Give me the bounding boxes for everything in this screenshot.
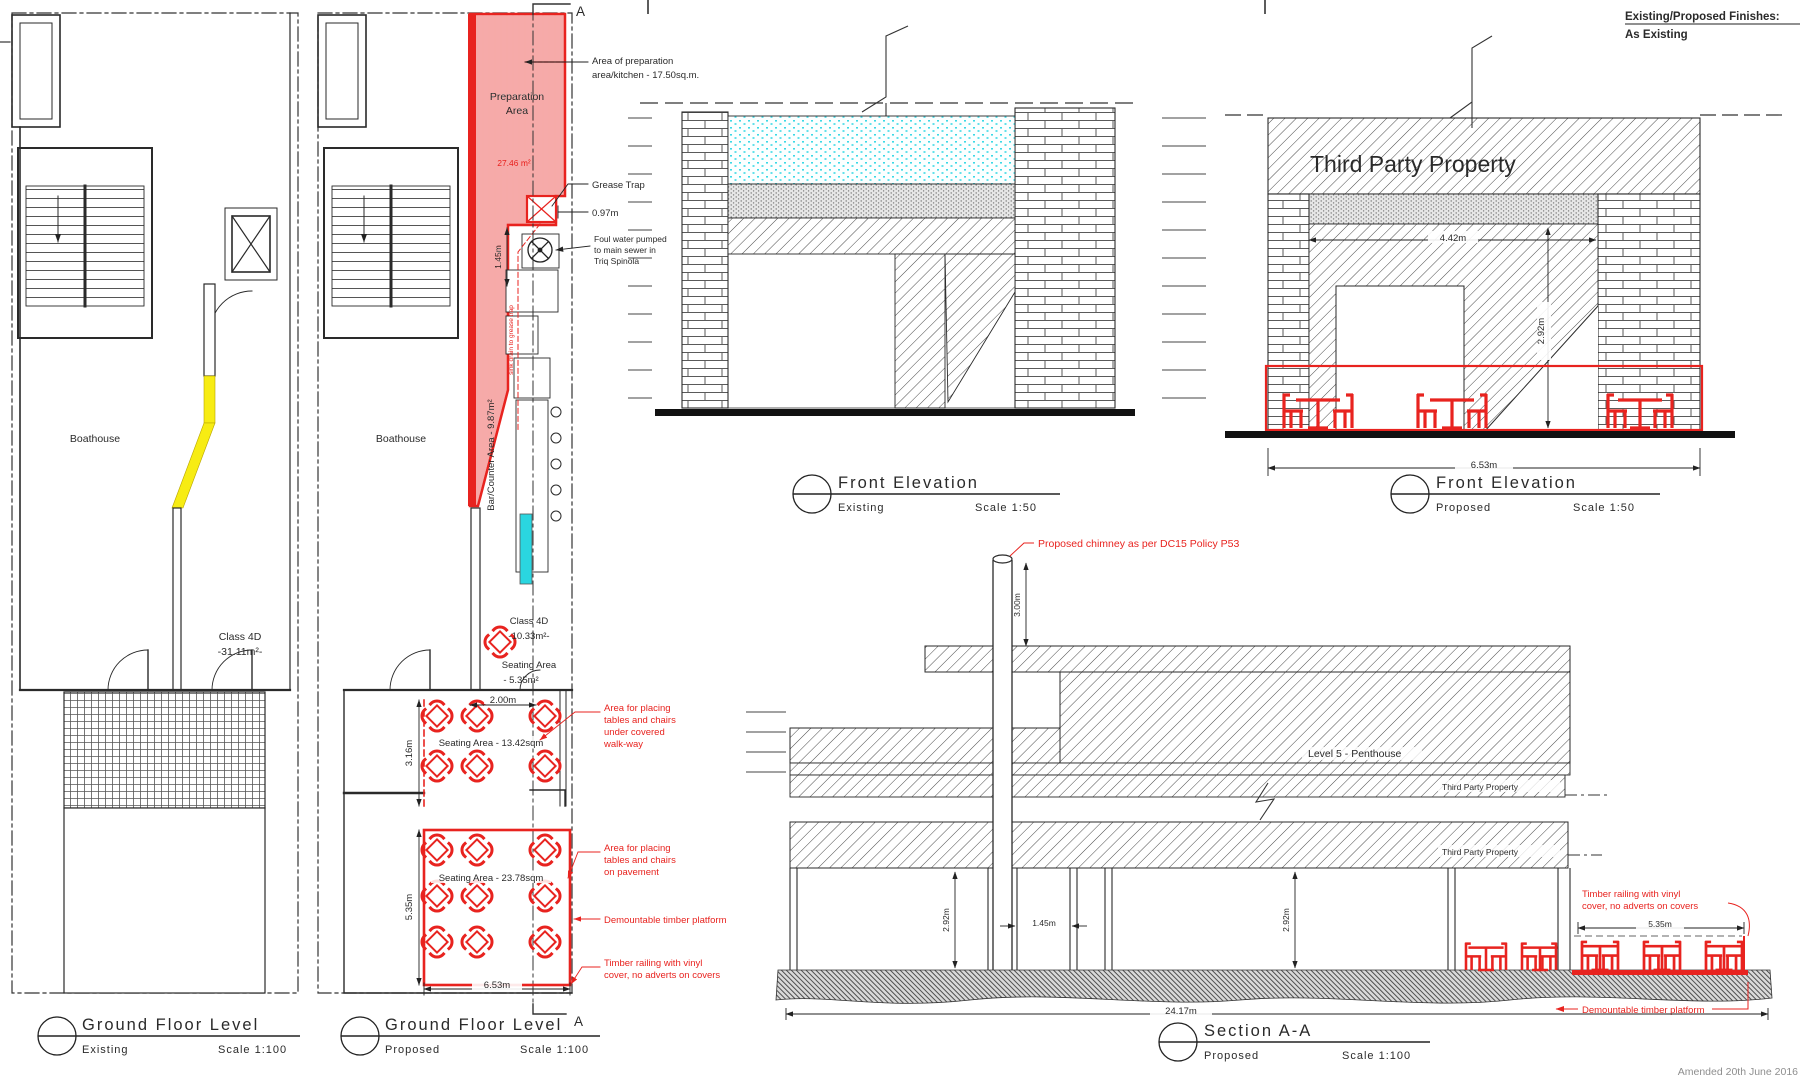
- level5-label: Level 5 - Penthouse: [1308, 748, 1402, 760]
- svg-text:under covered: under covered: [604, 727, 665, 738]
- lift-shaft: [225, 208, 277, 280]
- title-scale: Scale 1:100: [520, 1044, 589, 1056]
- dim-292a: 2.92m: [941, 872, 955, 968]
- finishes-title: Existing/Proposed Finishes:: [1625, 11, 1780, 23]
- seating-walkway-label: Seating Area - 13.42sqm: [439, 738, 544, 749]
- amended-note: Amended 20th June 2016: [1678, 1066, 1798, 1078]
- section-marker-bottom: A: [574, 1014, 583, 1029]
- bar-stools: [551, 407, 561, 521]
- staircase: [324, 148, 458, 338]
- paved-area: [64, 692, 265, 808]
- counter-top: [520, 514, 532, 584]
- finishes-note: Existing/Proposed Finishes: As Existing: [1625, 11, 1800, 41]
- svg-text:Area for placing: Area for placing: [604, 843, 671, 854]
- chimney: [993, 555, 1012, 972]
- brick-pier-left: [682, 112, 728, 408]
- title-sub: Proposed: [385, 1044, 440, 1056]
- roof-slab: [925, 646, 1570, 672]
- title-scale: Scale 1:100: [1342, 1050, 1411, 1062]
- matchline-left: [628, 118, 652, 398]
- drawing-sheet: Boathouse Class 4D -31.11m²- Preparation…: [0, 0, 1806, 1080]
- matchline-center: [1162, 118, 1206, 398]
- lintel-band: [728, 184, 1015, 218]
- door-opening: [1336, 286, 1464, 432]
- third-party-label-2: Third Party Property: [1442, 847, 1519, 857]
- prep-area-label2: Area: [506, 105, 528, 117]
- brick-pier-right: [1015, 108, 1115, 408]
- room-label-boathouse: Boathouse: [376, 433, 426, 445]
- yard: [64, 808, 265, 993]
- dim-653: 6.53m: [1268, 448, 1700, 476]
- room-area-class4d: -10.33m²-: [508, 631, 549, 642]
- title-scale: Scale 1:100: [218, 1044, 287, 1056]
- elevation-proposed: Third Party Property 4.42m 2.92m 6.53m: [1162, 0, 1782, 514]
- svg-text:Area for placing: Area for placing: [604, 703, 671, 714]
- top-left-room: [318, 15, 366, 127]
- platform-furniture: [1581, 941, 1743, 970]
- dim-535: 5.35m: [1578, 918, 1744, 934]
- title-sub: Proposed: [1204, 1050, 1259, 1062]
- title-text: Front Elevation: [838, 474, 979, 492]
- svg-text:tables and chairs: tables and chairs: [604, 715, 676, 726]
- yellow-highlight-wall: [204, 376, 215, 423]
- drawing-title: Section A-A Proposed Scale 1:100: [1159, 1022, 1430, 1062]
- top-left-room: [12, 15, 60, 127]
- svg-text:24.17m: 24.17m: [1165, 1006, 1197, 1017]
- foul-annotation: Foul water pumped to main sewer in Triq …: [556, 234, 667, 266]
- third-party-label: Third Party Property: [1310, 151, 1516, 177]
- svg-text:2.00m: 2.00m: [490, 695, 516, 706]
- svg-text:Foul water pumped: Foul water pumped: [594, 234, 667, 244]
- elevation-existing: Front Elevation Existing Scale 1:50: [628, 0, 1140, 514]
- chimney-annotation: Proposed chimney as per DC15 Policy P53: [1010, 538, 1240, 556]
- svg-text:2.92m: 2.92m: [1536, 318, 1547, 344]
- glazing-band: [728, 116, 1015, 184]
- pavement-annotation: Area for placing tables and chairs on pa…: [568, 843, 676, 878]
- break-symbol: [1450, 36, 1492, 128]
- svg-text:4.42m: 4.42m: [1440, 233, 1466, 244]
- corridor-wall-upper: [204, 284, 215, 376]
- plan-proposed-title: Ground Floor Level Proposed Scale 1:100: [341, 1016, 600, 1056]
- dim-316: 3.16m: [404, 700, 419, 806]
- platform-annotation: Demountable timber platform: [574, 915, 727, 926]
- architectural-drawing: Boathouse Class 4D -31.11m²- Preparation…: [0, 0, 1806, 1080]
- drawing-title: Front Elevation Existing Scale 1:50: [793, 474, 1060, 514]
- svg-text:area/kitchen - 17.50sq.m.: area/kitchen - 17.50sq.m.: [592, 70, 699, 81]
- svg-text:6.53m: 6.53m: [1471, 460, 1497, 471]
- drain-note: sink drain to grease trap: [508, 305, 515, 375]
- seating-pavement-label: Seating Area - 23.78sqm: [439, 873, 544, 884]
- drawing-title: Front Elevation Proposed Scale 1:50: [1391, 474, 1660, 514]
- svg-text:2.92m: 2.92m: [941, 908, 951, 932]
- title-text: Front Elevation: [1436, 474, 1577, 492]
- title-sub: Existing: [82, 1044, 129, 1056]
- preparation-area-border: [468, 14, 476, 506]
- svg-text:1.45m: 1.45m: [1032, 918, 1056, 928]
- title-sub: Existing: [838, 502, 885, 514]
- ground-floor-walls: [790, 868, 1570, 972]
- pavement-tables: [422, 835, 560, 957]
- title-sub: Proposed: [1436, 502, 1491, 514]
- bar-counter-label: Bar/Counter Area - 9.87m²: [486, 399, 497, 510]
- plan-existing-title: Ground Floor Level Existing Scale 1:100: [38, 1016, 300, 1056]
- center-pier: [895, 254, 945, 408]
- section-marker-top: A: [576, 4, 585, 19]
- title-text: Ground Floor Level: [385, 1016, 562, 1034]
- ground-strip: [776, 970, 1772, 1003]
- finishes-value: As Existing: [1625, 29, 1688, 41]
- room-label-class4d: Class 4D: [219, 631, 262, 643]
- ground-line: [655, 409, 1135, 416]
- covered-furniture: [1465, 943, 1557, 970]
- svg-text:3.00m: 3.00m: [1012, 593, 1022, 617]
- wall-band: [728, 218, 1015, 254]
- slab-band: [790, 763, 1570, 775]
- svg-text:Demountable timber platform: Demountable timber platform: [604, 915, 727, 926]
- dim-535: 5.35m: [404, 830, 419, 985]
- dividing-wall: [173, 508, 181, 690]
- dim-097: 0.97m: [558, 206, 618, 219]
- room-label-boathouse: Boathouse: [70, 433, 120, 445]
- room-label-class4d: Class 4D: [510, 616, 549, 627]
- dim-300: 3.00m: [1012, 563, 1026, 646]
- svg-text:6.53m: 6.53m: [484, 980, 510, 991]
- svg-text:cover, no adverts on covers: cover, no adverts on covers: [604, 970, 720, 981]
- svg-text:Area of preparation: Area of preparation: [592, 56, 673, 67]
- plan-existing: Boathouse Class 4D -31.11m²-: [0, 13, 298, 993]
- lintel-band: [1309, 194, 1598, 224]
- railing-annotation: Timber railing with vinyl cover, no adve…: [571, 958, 720, 984]
- yellow-highlight-wall-diagonal: [172, 423, 215, 508]
- terrace-slab: [790, 728, 1060, 763]
- svg-text:Timber railing with vinyl: Timber railing with vinyl: [1582, 889, 1680, 900]
- seating-inside-label: Seating Area: [502, 660, 557, 671]
- svg-text:walk-way: walk-way: [603, 739, 643, 750]
- svg-text:Timber railing with vinyl: Timber railing with vinyl: [604, 958, 702, 969]
- svg-text:2.92m: 2.92m: [1281, 908, 1291, 932]
- dim-145: 1.45m: [1000, 916, 1087, 928]
- foul-water-pump-symbol: [528, 238, 552, 262]
- dim-1.45m: 1.45m: [493, 245, 503, 269]
- third-party-label-1: Third Party Property: [1442, 782, 1519, 792]
- svg-text:Proposed chimney as per DC15 P: Proposed chimney as per DC15 Policy P53: [1038, 538, 1240, 550]
- ground-line: [1225, 431, 1735, 438]
- door-arc: [210, 291, 252, 333]
- matchline-left: [746, 712, 786, 772]
- svg-text:on pavement: on pavement: [604, 867, 659, 878]
- title-scale: Scale 1:50: [975, 502, 1037, 514]
- staircase: [18, 148, 152, 338]
- prep-area-value: 27.46 m²: [497, 158, 531, 168]
- plan-proposed: Preparation Area 27.46 m² Bar/Counter Ar…: [318, 4, 727, 1029]
- svg-text:Grease Trap: Grease Trap: [592, 180, 645, 191]
- grease-trap: [527, 196, 556, 222]
- prep-area-label: Preparation: [490, 91, 544, 103]
- svg-text:5.35m: 5.35m: [1648, 919, 1672, 929]
- section-aa: Level 5 - Penthouse Third Party Property…: [746, 538, 1772, 1062]
- svg-text:5.35m: 5.35m: [404, 894, 415, 920]
- room-area-class4d: -31.11m²-: [218, 646, 263, 658]
- dividing-wall: [471, 508, 480, 690]
- title-scale: Scale 1:50: [1573, 502, 1635, 514]
- stair-wall: [945, 254, 1015, 402]
- svg-text:cover, no adverts on covers: cover, no adverts on covers: [1582, 901, 1698, 912]
- title-text: Section A-A: [1204, 1022, 1312, 1040]
- svg-text:to main sewer in: to main sewer in: [594, 245, 656, 255]
- svg-text:3.16m: 3.16m: [404, 740, 415, 766]
- title-text: Ground Floor Level: [82, 1016, 259, 1034]
- svg-text:tables and chairs: tables and chairs: [604, 855, 676, 866]
- dim-292b: 2.92m: [1281, 872, 1295, 968]
- svg-text:0.97m: 0.97m: [592, 208, 618, 219]
